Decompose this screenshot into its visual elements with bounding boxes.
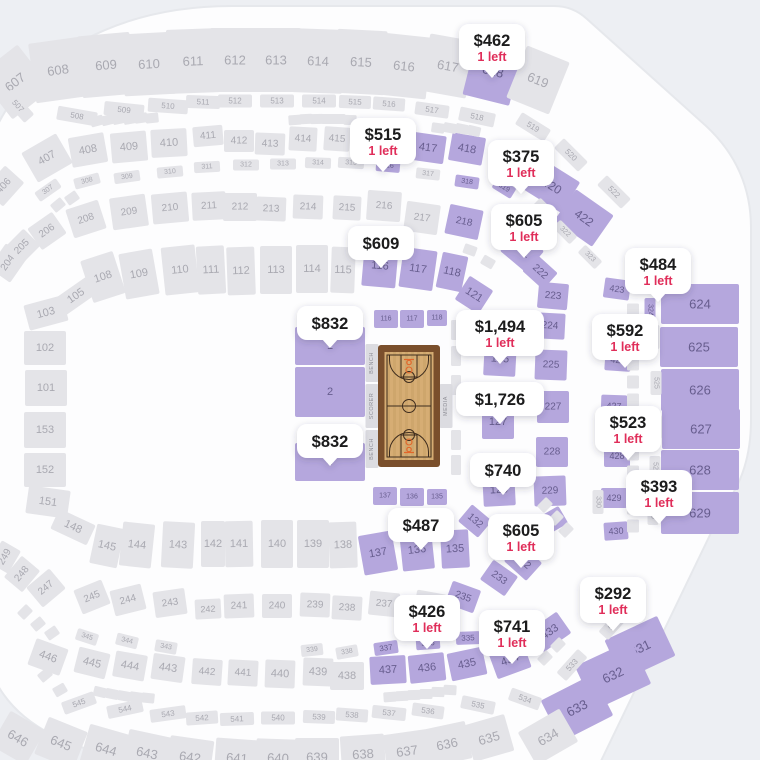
section-label: 311: [201, 163, 213, 171]
section-label: 216: [375, 200, 393, 212]
pin-price-label: $1,494: [475, 318, 526, 336]
section-label: 539: [312, 712, 326, 721]
section-228[interactable]: 228: [536, 437, 568, 467]
section-210: 210: [151, 191, 189, 224]
pin-price-label: $832: [312, 433, 349, 451]
section-153: 153: [24, 412, 66, 448]
section-label: 241: [230, 600, 247, 612]
section-label: 516: [382, 99, 396, 109]
pin-tickets-left-label: 1 left: [368, 144, 398, 158]
section-439: 439: [303, 657, 334, 686]
section-310: 310: [157, 165, 184, 178]
section-140: 140: [261, 520, 293, 568]
pin-price-label: $523: [610, 414, 647, 432]
section-label: 114: [303, 263, 321, 275]
pin-tickets-left-label: 1 left: [506, 166, 536, 180]
section-label: 536: [421, 706, 436, 717]
section-label: 117: [408, 262, 427, 276]
section-313: 313: [270, 159, 296, 170]
pin-price-label: $592: [607, 322, 644, 340]
section-216: 216: [366, 190, 402, 222]
section-410: 410: [150, 128, 187, 158]
section-625[interactable]: 625: [660, 327, 738, 367]
section-label: 239: [306, 599, 323, 611]
section-label: 152: [36, 464, 54, 476]
pin-price-label: $832: [312, 315, 349, 333]
seat-map[interactable]: 6076086096106116126136146156166176186195…: [0, 0, 760, 760]
section-label: 625: [688, 340, 710, 355]
section-label: 639: [306, 750, 328, 760]
section-label: 642: [178, 748, 202, 760]
pin-tickets-left-label: 1 left: [643, 274, 673, 288]
section-113: 113: [260, 246, 292, 294]
section-label: 237: [375, 598, 393, 611]
section-label: 512: [228, 97, 242, 106]
section-label: 118: [431, 315, 442, 322]
section-label: 337: [379, 643, 394, 654]
section-label: 330: [595, 496, 602, 508]
section-label: 138: [334, 539, 353, 552]
pin-price-label: $462: [474, 32, 511, 50]
section-641: 641: [214, 738, 261, 760]
section-152: 152: [24, 453, 66, 487]
section-label: 515: [348, 97, 362, 106]
pin-tickets-left-label: 1 left: [613, 432, 643, 446]
section-label: 224: [541, 320, 559, 332]
section-639: 639: [295, 738, 339, 760]
section-label: 411: [200, 130, 217, 142]
section-small: [627, 394, 639, 407]
section-141: 141: [225, 521, 254, 567]
section-444: 444: [112, 650, 148, 681]
section-514: 514: [302, 95, 336, 108]
section-label: 513: [270, 97, 284, 106]
section-label: 541: [230, 714, 244, 723]
section-label: 214: [299, 201, 316, 213]
section-label: 135: [446, 543, 465, 556]
section-label: 215: [338, 202, 356, 214]
section-511: 511: [186, 95, 220, 109]
section-label: 210: [161, 202, 179, 214]
price-pin-523-10[interactable]: $5231 left: [595, 406, 661, 460]
section-label: 110: [171, 263, 190, 277]
section-409: 409: [110, 130, 148, 163]
price-pin-292-16[interactable]: $2921 left: [580, 577, 646, 631]
section-414: 414: [288, 126, 317, 151]
section-118[interactable]: 118: [427, 310, 447, 326]
section-label: 610: [138, 56, 160, 72]
section-542: 542: [186, 710, 219, 725]
section-label: 640: [267, 750, 289, 760]
section-102: 102: [24, 331, 66, 365]
section-117[interactable]: 117: [400, 310, 424, 328]
section-139: 139: [297, 520, 329, 568]
section-443: 443: [150, 653, 185, 683]
bench-label: BENCH: [369, 438, 375, 460]
section-label: 141: [230, 538, 249, 550]
pin-price-label: $605: [506, 212, 543, 230]
section-2[interactable]: 2: [295, 367, 365, 417]
section-label: 335: [461, 633, 475, 642]
section-label: 153: [36, 424, 54, 436]
section-label: 430: [608, 525, 624, 536]
section-small: [407, 690, 420, 700]
section-110: 110: [161, 244, 200, 295]
section-label: 101: [37, 382, 55, 394]
section-label: 615: [350, 54, 372, 70]
section-144: 144: [119, 521, 155, 568]
section-small: [420, 689, 433, 699]
section-538: 538: [336, 707, 369, 722]
section-436[interactable]: 436: [408, 652, 447, 684]
section-label: 227: [545, 402, 562, 413]
section-238: 238: [331, 595, 362, 621]
pin-tickets-left-label: 1 left: [412, 621, 442, 635]
price-pin-592-8[interactable]: $5921 left: [592, 314, 658, 368]
pin-price-label: $740: [485, 462, 522, 480]
pin-price-label: $426: [409, 603, 446, 621]
section-116[interactable]: 116: [374, 310, 398, 328]
price-pin-375-2[interactable]: $3751 left: [488, 140, 554, 194]
pin-tickets-left-label: 1 left: [485, 336, 515, 350]
pin-tickets-left-label: 1 left: [477, 50, 507, 64]
section-small: [383, 692, 397, 703]
section-211: 211: [191, 191, 226, 221]
price-pin-605-15[interactable]: $6051 left: [488, 514, 554, 568]
section-label: 339: [306, 646, 318, 654]
price-pin-484-5[interactable]: $4841 left: [625, 248, 691, 302]
section-214: 214: [293, 194, 324, 219]
section-label: 638: [352, 746, 375, 760]
section-small: [451, 455, 461, 475]
section-241: 241: [224, 593, 255, 618]
pin-price-label: $609: [363, 235, 400, 253]
section-label: 2: [327, 386, 333, 398]
section-label: 612: [224, 53, 246, 68]
section-label: 223: [544, 290, 562, 302]
section-label: 144: [127, 538, 147, 552]
section-label: 211: [201, 200, 218, 212]
section-label: 242: [200, 604, 216, 615]
seat-map-page: 6076086096106116126136146156166176186195…: [0, 0, 760, 760]
section-413: 413: [255, 132, 286, 155]
section-label: 314: [312, 159, 324, 166]
section-440: 440: [265, 659, 296, 688]
section-239: 239: [300, 592, 331, 617]
section-small: [431, 122, 445, 134]
pin-tickets-left-label: 1 left: [509, 230, 539, 244]
section-label: 111: [202, 264, 219, 277]
section-112: 112: [226, 247, 256, 296]
section-label: 140: [268, 538, 286, 550]
section-label: 511: [196, 97, 210, 106]
section-label: 436: [417, 661, 437, 675]
price-pin-741-18[interactable]: $7411 left: [479, 610, 545, 664]
section-small: [627, 376, 639, 389]
section-label: 525: [653, 377, 660, 389]
price-pin-605-3[interactable]: $6051 left: [491, 204, 557, 258]
section-small: [627, 520, 639, 533]
section-small: [145, 112, 159, 123]
bench-label: BENCH: [369, 352, 375, 374]
pin-price-label: $605: [503, 522, 540, 540]
section-418[interactable]: 418: [448, 132, 486, 165]
section-label: 609: [95, 57, 118, 74]
section-213: 213: [256, 196, 287, 221]
price-pin-462-0[interactable]: $4621 left: [459, 24, 525, 78]
pin-price-label: $292: [595, 585, 632, 603]
section-437[interactable]: 437: [369, 655, 406, 685]
section-label: 137: [379, 493, 391, 500]
section-label: 616: [392, 57, 415, 74]
section-label: 135: [431, 494, 443, 501]
pin-price-label: $487: [403, 517, 440, 535]
section-label: 312: [240, 162, 252, 169]
section-label: 613: [265, 53, 287, 68]
section-label: 423: [609, 283, 625, 295]
section-label: 136: [406, 494, 418, 501]
section-330: 330: [593, 490, 604, 514]
media-label: MEDIA: [443, 396, 449, 416]
section-114: 114: [296, 245, 328, 293]
section-label: 414: [294, 133, 312, 145]
section-label: 440: [271, 668, 290, 681]
price-pin-393-13[interactable]: $3931 left: [626, 470, 692, 524]
section-415: 415: [323, 126, 351, 152]
section-142: 142: [201, 521, 225, 567]
section-label: 624: [689, 297, 711, 312]
section-516: 516: [373, 96, 406, 111]
section-label: 517: [425, 105, 440, 116]
section-442: 442: [191, 658, 223, 686]
section-label: 443: [158, 661, 178, 675]
section-label: 151: [38, 495, 58, 509]
section-label: 102: [36, 342, 54, 354]
section-label: 641: [226, 750, 249, 760]
pin-tickets-left-label: 1 left: [506, 540, 536, 554]
section-label: 510: [161, 101, 175, 111]
section-label: 139: [304, 538, 322, 550]
scorer-label: SCORER: [369, 393, 375, 420]
section-label: 142: [204, 538, 222, 550]
section-label: 626: [689, 383, 711, 398]
section-515: 515: [339, 95, 371, 109]
section-314: 314: [305, 157, 331, 169]
section-135[interactable]: 135: [427, 489, 447, 505]
section-240: 240: [262, 594, 292, 618]
section-label: 439: [309, 666, 328, 679]
section-510: 510: [148, 98, 189, 115]
section-label: 437: [379, 664, 398, 677]
section-label: 628: [689, 463, 711, 478]
section-label: 417: [418, 141, 438, 155]
section-136[interactable]: 136: [400, 488, 424, 506]
section-638: 638: [340, 734, 387, 760]
section-small: [141, 692, 155, 703]
section-137[interactable]: 137: [373, 487, 397, 505]
section-label: 409: [119, 140, 138, 154]
section-label: 412: [231, 136, 248, 147]
section-label: 629: [689, 506, 711, 521]
section-label: 537: [382, 708, 397, 718]
section-label: 611: [182, 53, 203, 69]
price-pin-1494-7[interactable]: $1,4941 left: [456, 310, 544, 364]
section-label: 228: [544, 447, 561, 458]
section-label: 113: [267, 264, 285, 276]
pin-tickets-left-label: 1 left: [610, 340, 640, 354]
section-label: 112: [232, 265, 250, 278]
section-429[interactable]: 429: [601, 488, 627, 508]
section-label: 608: [46, 61, 70, 79]
section-small: [395, 691, 409, 702]
section-small: [431, 687, 444, 697]
section-label: 415: [328, 133, 346, 145]
section-223[interactable]: 223: [537, 282, 569, 311]
section-243: 243: [152, 588, 187, 618]
section-438: 438: [330, 662, 364, 690]
section-label: 313: [277, 161, 289, 168]
section-539: 539: [303, 710, 335, 724]
price-pin-426-17[interactable]: $4261 left: [394, 595, 460, 649]
section-label: 637: [395, 742, 419, 760]
section-412: 412: [224, 130, 254, 152]
section-209: 209: [109, 194, 149, 231]
pin-price-label: $484: [640, 256, 678, 274]
section-label: 441: [234, 667, 252, 679]
section-label: 540: [271, 714, 285, 723]
section-640: 640: [255, 738, 300, 760]
section-label: 413: [261, 138, 278, 150]
section-408: 408: [68, 132, 109, 168]
section-small: [443, 685, 457, 696]
pin-tickets-left-label: 1 left: [598, 603, 628, 617]
section-label: 438: [338, 670, 356, 682]
pin-price-label: $1,726: [475, 391, 525, 409]
section-label: 116: [380, 316, 391, 323]
section-212: 212: [223, 193, 257, 221]
section-540: 540: [261, 712, 295, 725]
section-label: 429: [606, 493, 621, 503]
section-512: 512: [218, 95, 252, 108]
section-626[interactable]: 626: [661, 369, 739, 411]
section-label: 614: [307, 53, 329, 69]
section-143: 143: [161, 521, 195, 569]
price-pin-515-1[interactable]: $5151 left: [350, 118, 416, 172]
section-label: 225: [542, 359, 559, 371]
section-label: 143: [169, 539, 188, 552]
section-513: 513: [260, 95, 294, 108]
section-small: [129, 691, 143, 703]
section-441: 441: [227, 659, 258, 687]
section-339: 339: [300, 643, 323, 657]
section-label: 212: [232, 202, 249, 213]
section-label: 514: [312, 97, 326, 106]
section-541: 541: [220, 712, 254, 726]
pin-tickets-left-label: 1 left: [497, 636, 527, 650]
section-111: 111: [196, 245, 226, 294]
section-label: 240: [269, 601, 286, 612]
section-242: 242: [194, 598, 221, 619]
section-label: 317: [422, 170, 434, 178]
section-label: 117: [406, 316, 417, 323]
section-label: 115: [334, 264, 352, 277]
section-627[interactable]: 627: [662, 409, 740, 449]
section-label: 543: [161, 709, 176, 720]
pin-price-label: $375: [503, 148, 540, 166]
pin-tickets-left-label: 1 left: [644, 496, 674, 510]
section-label: 238: [338, 602, 356, 614]
section-label: 627: [690, 422, 712, 437]
section-label: 542: [195, 713, 209, 723]
section-430[interactable]: 430: [603, 521, 628, 541]
section-label: 310: [164, 168, 176, 176]
section-small: [451, 430, 461, 450]
section-101: 101: [25, 370, 67, 406]
section-label: 213: [262, 203, 279, 215]
section-215: 215: [332, 195, 361, 220]
pin-price-label: $393: [641, 478, 678, 496]
pin-price-label: $515: [365, 126, 402, 144]
section-label: 229: [541, 485, 558, 497]
section-138: 138: [328, 522, 358, 569]
section-label: 538: [345, 710, 359, 720]
section-312: 312: [233, 160, 259, 171]
section-411: 411: [192, 125, 224, 148]
section-label: 410: [160, 137, 179, 150]
pin-price-label: $741: [494, 618, 531, 636]
court: BENCHSCORERBENCHMEDIA: [366, 344, 453, 468]
section-label: 442: [198, 666, 216, 678]
section-525: 525: [651, 371, 662, 395]
section-311: 311: [194, 161, 221, 173]
